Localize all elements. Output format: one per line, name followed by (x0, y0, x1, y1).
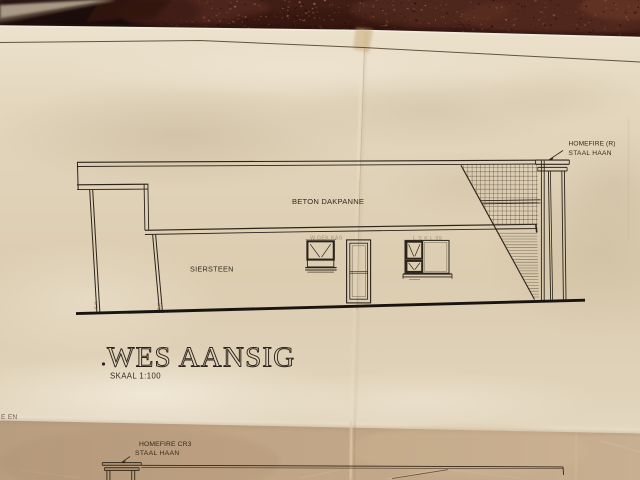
svg-text:STAAL HAAN: STAAL HAAN (569, 150, 612, 157)
svg-text:WES AANSIG: WES AANSIG (107, 342, 295, 374)
svg-text:S.K: S.K (157, 302, 162, 310)
svg-text:STAAL HAAN: STAAL HAAN (135, 450, 180, 457)
svg-text:HOMEFIRE CR3: HOMEFIRE CR3 (139, 441, 192, 448)
svg-text:BETON DAKPANNE: BETON DAKPANNE (292, 197, 364, 206)
svg-text:S.K: S.K (94, 301, 99, 309)
svg-text:SKAAL 1:100: SKAAL 1:100 (110, 372, 161, 381)
svg-text:HOMEFIRE (R): HOMEFIRE (R) (569, 141, 616, 148)
svg-text:SIERSTEEN: SIERSTEEN (190, 265, 234, 274)
